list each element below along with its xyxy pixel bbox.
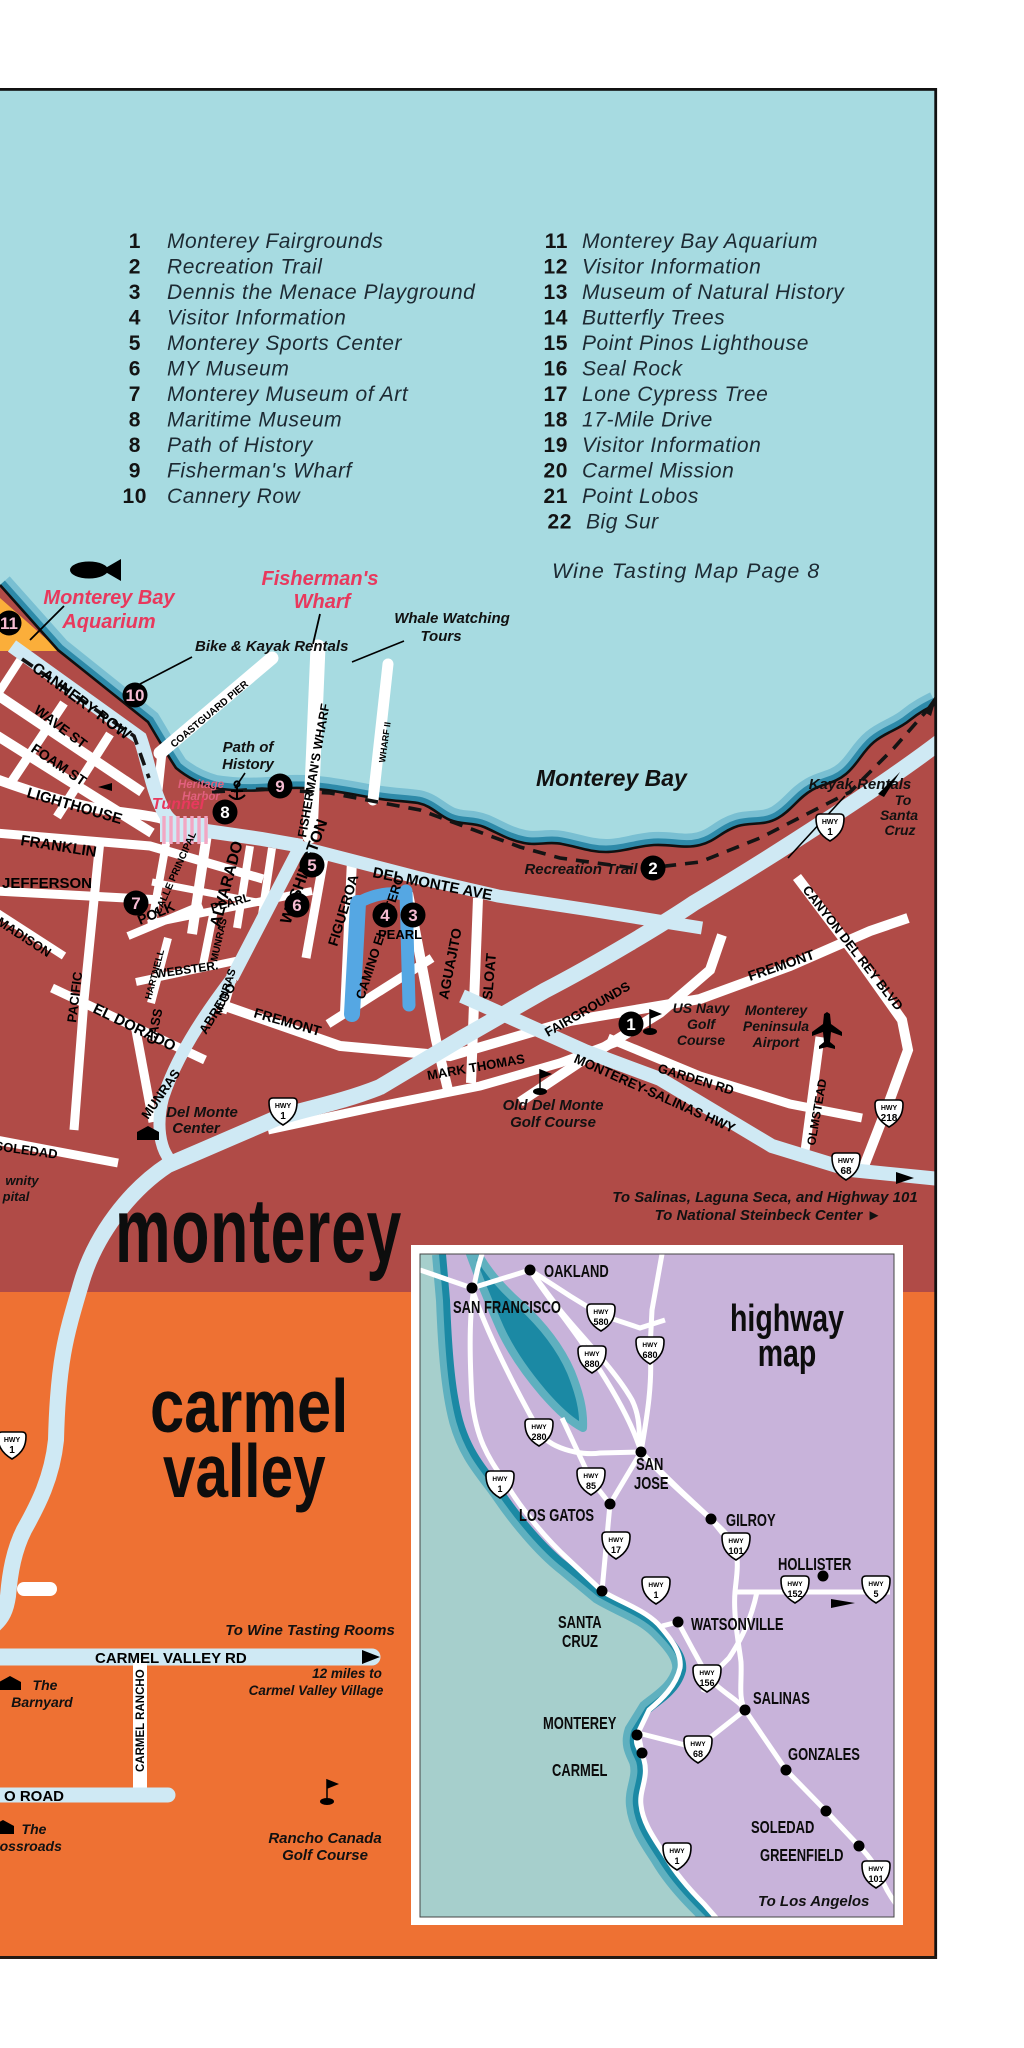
svg-text:Monterey Fairgrounds: Monterey Fairgrounds [167,230,383,253]
svg-text:HWY: HWY [275,1103,292,1110]
svg-text:PEARL: PEARL [378,927,422,942]
svg-text:280: 280 [531,1432,546,1442]
svg-text:MY Museum: MY Museum [167,358,289,381]
svg-text:To National Steinbeck Center ►: To National Steinbeck Center ► [655,1207,882,1224]
svg-text:10: 10 [123,485,147,508]
svg-text:Path of: Path of [223,739,276,756]
svg-text:HWY: HWY [787,1581,803,1588]
svg-text:Aquarium: Aquarium [61,611,155,633]
svg-text:580: 580 [593,1317,608,1327]
svg-text:8: 8 [129,409,141,432]
svg-text:Cannery Row: Cannery Row [167,485,302,508]
svg-text:Course: Course [677,1032,725,1048]
svg-text:Visitor Information: Visitor Information [582,434,761,457]
svg-text:MONTEREY: MONTEREY [543,1714,617,1734]
svg-text:Maritime Museum: Maritime Museum [167,409,342,432]
svg-text:19: 19 [544,434,568,457]
svg-text:9: 9 [275,777,284,796]
svg-text:Peninsula: Peninsula [743,1018,809,1034]
svg-text:Visitor Information: Visitor Information [167,307,346,330]
svg-text:JOSE: JOSE [634,1474,669,1494]
svg-text:HWY: HWY [881,1105,898,1112]
svg-text:Dennis the Menace Playground: Dennis the Menace Playground [167,281,476,304]
svg-text:SAN: SAN [636,1455,663,1475]
svg-text:7: 7 [131,894,140,913]
svg-text:Del Monte: Del Monte [166,1104,238,1121]
svg-text:11: 11 [545,230,568,253]
svg-text:8: 8 [220,803,229,822]
svg-text:3: 3 [408,906,417,925]
svg-text:15: 15 [544,332,568,355]
svg-text:Visitor Information: Visitor Information [582,256,761,279]
svg-text:Big Sur: Big Sur [586,511,659,534]
svg-text:152: 152 [787,1589,802,1599]
svg-text:17-Mile Drive: 17-Mile Drive [582,409,713,432]
svg-text:CARMEL RANCHO: CARMEL RANCHO [135,1669,147,1772]
svg-text:HOLLISTER: HOLLISTER [778,1555,851,1575]
svg-text:Monterey: Monterey [745,1002,808,1018]
svg-text:Barnyard: Barnyard [11,1694,73,1710]
svg-text:Wine Tasting Map Page 8: Wine Tasting Map Page 8 [552,559,820,583]
svg-text:Carmel Mission: Carmel Mission [582,460,734,483]
svg-text:HWY: HWY [838,1158,855,1165]
svg-text:wnity: wnity [5,1173,39,1188]
svg-text:WATSONVILLE: WATSONVILLE [691,1615,784,1635]
svg-text:LOS GATOS: LOS GATOS [519,1506,594,1526]
svg-text:HWY: HWY [690,1741,706,1748]
svg-text:O ROAD: O ROAD [4,1788,64,1805]
svg-text:6: 6 [292,896,301,915]
svg-text:CARMEL VALLEY RD: CARMEL VALLEY RD [95,1650,247,1667]
svg-text:Fisherman's: Fisherman's [261,568,378,590]
svg-text:GILROY: GILROY [726,1511,776,1531]
svg-text:14: 14 [544,307,568,330]
svg-text:1: 1 [674,1856,679,1866]
svg-text:HWY: HWY [822,819,839,826]
svg-text:1: 1 [497,1484,502,1494]
svg-text:3: 3 [129,281,141,304]
svg-text:GONZALES: GONZALES [788,1745,860,1765]
svg-text:101: 101 [868,1874,883,1884]
svg-text:1: 1 [653,1590,658,1600]
svg-text:HWY: HWY [608,1537,624,1544]
svg-text:17: 17 [611,1545,621,1555]
svg-text:History: History [222,756,274,773]
svg-text:Kayak Rentals: Kayak Rentals [809,776,912,793]
svg-text:Point Pinos Lighthouse: Point Pinos Lighthouse [582,332,809,355]
svg-text:12: 12 [544,256,568,279]
svg-text:Wharf: Wharf [294,591,353,613]
svg-text:HWY: HWY [699,1670,715,1677]
svg-text:Golf Course: Golf Course [510,1114,596,1131]
svg-text:SALINAS: SALINAS [753,1689,810,1709]
svg-text:101: 101 [728,1546,743,1556]
svg-text:Path of History: Path of History [167,434,314,457]
svg-text:8: 8 [129,434,141,457]
svg-text:pital: pital [2,1189,30,1204]
svg-text:Heritage: Heritage [178,779,225,791]
svg-text:HWY: HWY [648,1582,664,1589]
svg-text:1: 1 [9,1445,15,1456]
svg-text:SAN FRANCISCO: SAN FRANCISCO [453,1298,561,1318]
svg-text:Seal Rock: Seal Rock [582,358,684,381]
svg-text:SOLEDAD: SOLEDAD [751,1818,814,1838]
svg-text:1: 1 [280,1111,286,1122]
svg-text:Airport: Airport [752,1034,801,1050]
svg-text:HWY: HWY [583,1473,599,1480]
svg-text:JEFFERSON: JEFFERSON [2,875,92,892]
svg-text:HWY: HWY [4,1437,21,1444]
svg-text:valley: valley [163,1430,326,1514]
svg-text:Cruz: Cruz [884,822,915,838]
svg-text:To: To [895,792,912,808]
svg-text:The: The [33,1677,58,1693]
svg-text:5: 5 [129,332,141,355]
svg-text:13: 13 [544,281,568,304]
svg-text:18: 18 [544,409,568,432]
svg-text:680: 680 [642,1350,657,1360]
svg-text:HWY: HWY [642,1342,658,1349]
svg-text:Center: Center [172,1120,221,1137]
svg-text:16: 16 [544,358,568,381]
svg-text:Whale Watching: Whale Watching [394,610,510,627]
svg-text:Golf: Golf [687,1016,716,1032]
svg-text:Butterfly Trees: Butterfly Trees [582,307,725,330]
svg-text:HWY: HWY [492,1476,508,1483]
svg-text:OAKLAND: OAKLAND [544,1262,609,1282]
svg-text:10: 10 [126,686,145,705]
svg-text:HWY: HWY [669,1848,685,1855]
svg-text:CARMEL: CARMEL [552,1761,608,1781]
svg-text:Bike & Kayak Rentals: Bike & Kayak Rentals [195,638,348,655]
svg-text:US Navy: US Navy [673,1000,731,1016]
svg-text:HWY: HWY [868,1581,884,1588]
svg-text:Tours: Tours [420,628,461,645]
svg-text:1: 1 [129,230,141,253]
svg-text:17: 17 [544,383,568,406]
svg-text:monterey: monterey [115,1179,402,1282]
svg-text:68: 68 [840,1166,852,1177]
svg-text:85: 85 [586,1481,596,1491]
svg-text:Santa: Santa [880,807,918,823]
svg-text:9: 9 [129,460,141,483]
svg-text:5: 5 [873,1589,878,1599]
svg-text:HWY: HWY [868,1866,884,1873]
svg-text:CRUZ: CRUZ [562,1632,598,1652]
svg-text:7: 7 [129,383,141,406]
svg-text:Rancho Canada: Rancho Canada [268,1830,381,1847]
svg-text:HWY: HWY [531,1424,547,1431]
svg-text:5: 5 [307,856,316,875]
svg-text:Old Del Monte: Old Del Monte [503,1097,604,1114]
svg-text:Lone Cypress Tree: Lone Cypress Tree [582,383,768,406]
svg-text:Point Lobos: Point Lobos [582,485,699,508]
svg-text:68: 68 [693,1749,703,1759]
svg-text:4: 4 [380,906,390,925]
svg-text:Carmel Valley Village: Carmel Valley Village [249,1683,384,1698]
svg-text:6: 6 [129,358,141,381]
svg-text:SANTA: SANTA [558,1613,602,1633]
svg-text:1: 1 [827,827,833,838]
svg-text:GREENFIELD: GREENFIELD [760,1846,843,1866]
svg-text:The: The [22,1821,47,1837]
svg-text:To Salinas, Laguna Seca, and H: To Salinas, Laguna Seca, and Highway 101 [612,1189,917,1206]
svg-text:2: 2 [648,859,657,878]
svg-text:HWY: HWY [593,1309,609,1316]
svg-text:Golf Course: Golf Course [282,1847,368,1864]
svg-text:To Los Angelos: To Los Angelos [758,1893,869,1910]
svg-text:To Wine Tasting Rooms: To Wine Tasting Rooms [225,1622,395,1639]
svg-text:HWY: HWY [728,1538,744,1545]
svg-text:map: map [758,1333,817,1375]
svg-text:HWY: HWY [584,1351,600,1358]
svg-text:Recreation Trail: Recreation Trail [524,861,638,878]
svg-text:rossroads: rossroads [0,1838,62,1854]
svg-text:156: 156 [699,1678,714,1688]
svg-text:Monterey Museum of Art: Monterey Museum of Art [167,383,409,406]
svg-text:21: 21 [544,485,568,508]
svg-text:1: 1 [626,1015,635,1034]
svg-text:Monterey Sports Center: Monterey Sports Center [167,332,402,355]
svg-text:12 miles to: 12 miles to [312,1666,382,1681]
svg-text:22: 22 [548,511,572,534]
svg-text:Monterey Bay Aquarium: Monterey Bay Aquarium [582,230,818,253]
svg-text:Recreation Trail: Recreation Trail [167,256,323,279]
svg-text:Monterey Bay: Monterey Bay [536,765,688,791]
svg-text:218: 218 [881,1113,898,1124]
svg-text:4: 4 [129,307,141,330]
svg-text:20: 20 [544,460,568,483]
svg-text:11: 11 [0,614,18,633]
svg-text:Museum of Natural History: Museum of Natural History [582,281,845,304]
svg-text:Tunnel: Tunnel [152,796,205,813]
svg-text:Fisherman's Wharf: Fisherman's Wharf [167,460,354,483]
svg-text:880: 880 [584,1359,599,1369]
svg-text:2: 2 [129,256,141,279]
